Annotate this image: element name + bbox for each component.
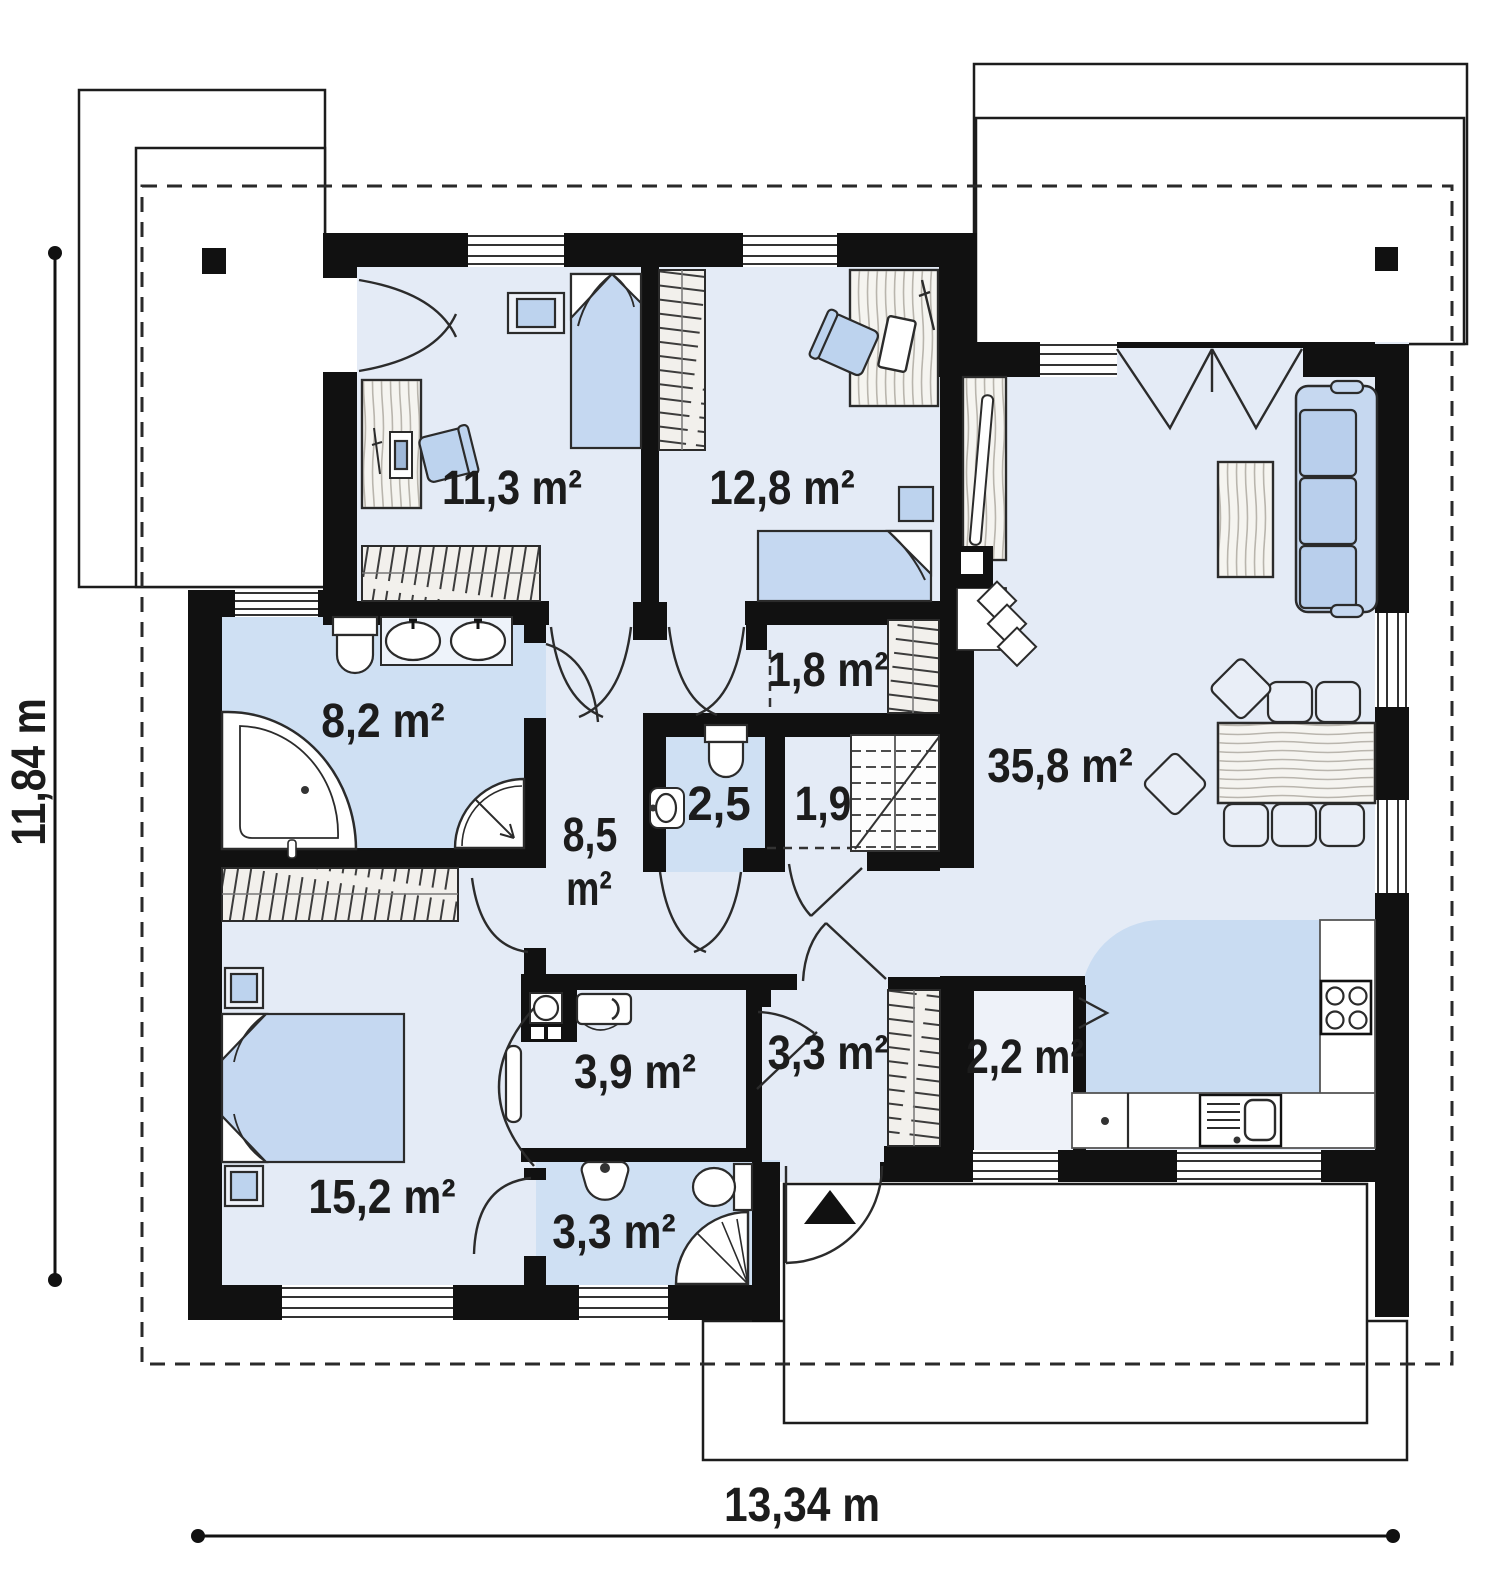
svg-text:3,3 m²: 3,3 m² xyxy=(552,1205,675,1259)
svg-text:3,3 m²: 3,3 m² xyxy=(768,1025,889,1079)
svg-text:8,5: 8,5 xyxy=(563,808,618,862)
svg-text:m²: m² xyxy=(566,863,612,917)
svg-text:11,84 m: 11,84 m xyxy=(3,698,56,845)
svg-text:3,9 m²: 3,9 m² xyxy=(574,1044,696,1098)
svg-text:1,8 m²: 1,8 m² xyxy=(768,642,889,696)
svg-text:35,8 m²: 35,8 m² xyxy=(987,738,1133,792)
svg-text:13,34 m: 13,34 m xyxy=(724,1478,880,1532)
svg-text:12,8 m²: 12,8 m² xyxy=(709,460,855,514)
svg-text:15,2 m²: 15,2 m² xyxy=(308,1170,455,1224)
svg-text:1,9: 1,9 xyxy=(795,778,852,831)
svg-text:8,2 m²: 8,2 m² xyxy=(321,694,444,748)
svg-text:11,3 m²: 11,3 m² xyxy=(442,461,582,515)
svg-text:2,2 m²: 2,2 m² xyxy=(966,1031,1084,1084)
svg-text:2,5: 2,5 xyxy=(687,777,750,830)
